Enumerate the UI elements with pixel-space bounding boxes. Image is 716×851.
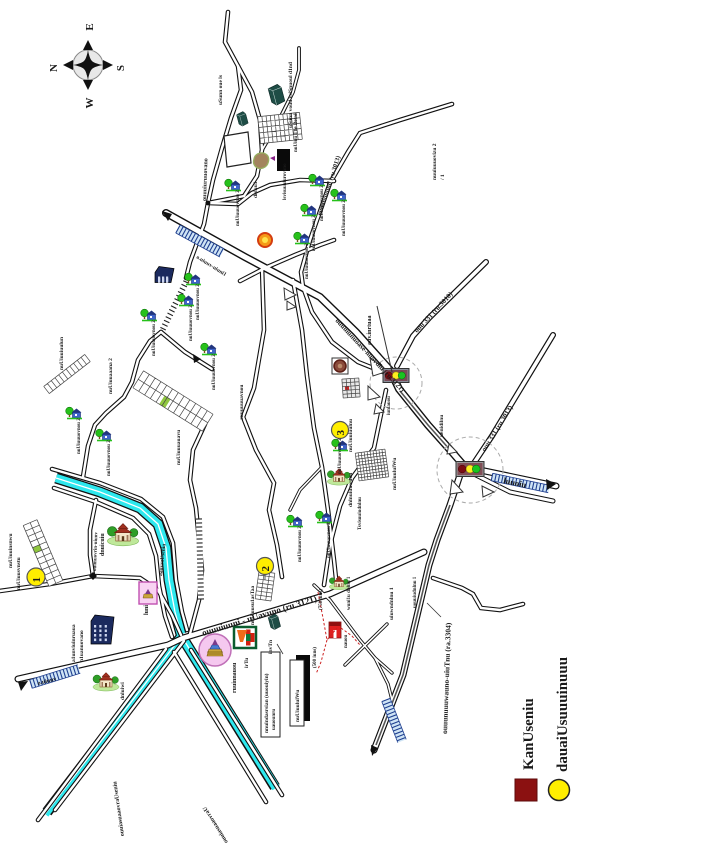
svg-text:nuUiuuuovnou 2: nuUiuuuovnou 2 [236, 190, 241, 226]
svg-text:ruuinnauou: ruuinnauou [232, 662, 238, 693]
svg-text:nuUiuululWu: nuUiuululWu [295, 690, 301, 722]
svg-text:dnuicuiu: dnuicuiu [100, 533, 106, 556]
svg-text:nuUiuuuovnou 2: nuUiuuuovnou 2 [312, 215, 317, 251]
svg-text:nuUiuuuovnou 2: nuUiuuuovnou 2 [327, 522, 332, 558]
svg-text:auuuuuuavnou: auuuuuuavnou [239, 385, 245, 420]
svg-text:/ 1: / 1 [440, 174, 446, 181]
svg-text:3: 3 [335, 430, 347, 436]
svg-text:dnlnuiuuwuou: dnlnuiuuwuou [348, 473, 354, 507]
svg-text:uauounru: uauounru [272, 709, 277, 730]
svg-text:nuUiuusu1asTaa: nuUiuusu1asTaa [250, 586, 256, 625]
svg-text:nnuindasrsian (uuouiyin): nnuindasrsian (uuouiyin) [263, 673, 270, 733]
svg-text:nuuiuuuovizu 2: nuuiuuuovizu 2 [432, 143, 438, 180]
svg-text:N: N [48, 64, 60, 72]
svg-text:1: 1 [31, 577, 43, 583]
svg-text:nuUiuuuovnou 2: nuUiuuuovnou 2 [298, 526, 303, 562]
svg-text:2: 2 [260, 566, 272, 572]
svg-text:invTn: invTn [268, 640, 274, 654]
svg-text:nuUiuuinsnwu: nuUiuuinsnwu [8, 533, 14, 568]
svg-text:uSunn oue ls: uSunn oue ls [218, 75, 224, 105]
svg-text:dauaiUsuuuinuuu: dauaiUsuuuinuuu [555, 657, 571, 772]
svg-text:(750 iuns): (750 iuns) [319, 589, 324, 610]
svg-text:S: S [115, 65, 127, 71]
svg-text:nuUiuuiuulnu: nuUiuuiuulnu [348, 419, 354, 452]
svg-text:W: W [84, 98, 96, 109]
svg-text:nuUiuuaaana 2: nuUiuuaaana 2 [108, 358, 114, 394]
svg-text:uouuiudnlnu 1: uouuiudnlnu 1 [413, 576, 418, 608]
svg-text:nuUiuuuovnou 2: nuUiuuuovnou 2 [107, 440, 112, 476]
svg-text:nuUiuuuovnou 2: nuUiuuuovnou 2 [320, 185, 325, 221]
svg-text:nuUiuuuovnou 2: nuUiuuuovnou 2 [305, 243, 310, 279]
svg-text:(500 iuns): (500 iuns) [313, 647, 318, 668]
svg-text:nuUiuusvnstu: nuUiuusvnstu [16, 557, 22, 590]
svg-text:iuniauou: iuniauou [387, 396, 392, 415]
svg-text:nuUiuuuovnou 2: nuUiuuuovnou 2 [189, 305, 194, 341]
svg-text:nuUiuuuovnou 2: nuUiuuuovnou 2 [342, 200, 347, 236]
svg-text:lsvisuuuiurovano: lsvisuuuiurovano [283, 163, 288, 200]
svg-text:nuUiuululWu: nuUiuululWu [392, 458, 398, 490]
svg-text:nuUiuuuovnou 2: nuUiuuuovnou 2 [212, 354, 217, 390]
svg-text:nuUiuuuauavu: nuUiuuuauavu [176, 430, 182, 465]
svg-text:auv.inrtuaa: auv.inrtuaa [367, 315, 373, 345]
svg-text:nuUiuuuovnou 2: nuUiuuuovnou 2 [152, 320, 157, 356]
svg-text:uenidilnu: uenidilnu [439, 415, 445, 437]
svg-text:nuUiuuiuulun: nuUiuuiuulun [59, 337, 65, 370]
svg-text:nuUiuuuovnou 2: nuUiuuuovnou 2 [338, 438, 343, 474]
svg-text:nauou: nauou [344, 634, 349, 648]
svg-text:KanUseniu: KanUseniu [521, 698, 537, 770]
svg-text:a1unviuinruaua: a1unviuinruaua [71, 624, 77, 662]
svg-text:dnluiwi: dnluiwi [120, 682, 126, 700]
svg-text:irTu: irTu [244, 658, 250, 668]
svg-text:Tsvisuuiudnlnu: Tsvisuuiudnlnu [358, 497, 363, 530]
svg-text:luni: luni [144, 605, 150, 615]
svg-text:dniuu1: dniuu1 [253, 181, 259, 198]
svg-text:E: E [84, 23, 96, 30]
svg-text:n1uanuovano: n1uanuovano [79, 630, 85, 662]
svg-text:nuUiuuuovnou 2: nuUiuuuovnou 2 [196, 284, 201, 320]
svg-text:nuUiuu The Detail: nuUiuu The Detail [294, 112, 299, 152]
svg-text:nuUiuuuovnou 2: nuUiuuuovnou 2 [77, 418, 82, 454]
svg-text:uiuwndnlnu 1: uiuwndnlnu 1 [389, 587, 395, 620]
svg-text:wuni1u dnlnu 1: wuni1u dnlnu 1 [347, 576, 352, 610]
